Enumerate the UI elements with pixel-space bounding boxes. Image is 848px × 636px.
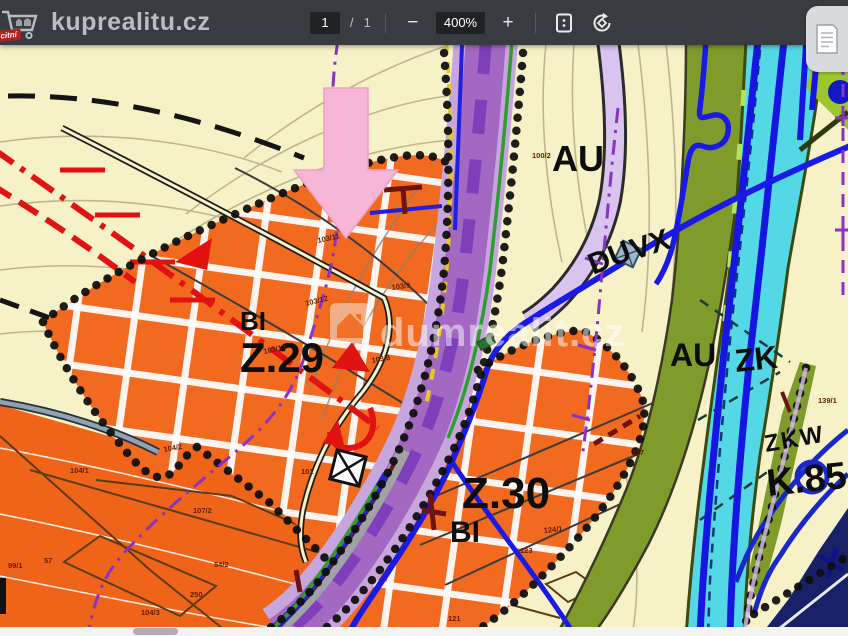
horizontal-scrollbar[interactable] [0, 627, 848, 636]
parcel-label: 57 [44, 556, 52, 565]
logo-text: kuprealitu.cz [51, 8, 210, 37]
zone-label-au-top: AU [552, 138, 604, 179]
parcel-label: 101 [301, 467, 314, 476]
parcel-label: 139/1 [818, 396, 837, 405]
pdf-controls: 1 / 1 − 400% + [310, 0, 616, 45]
fit-to-page-button[interactable] [550, 9, 578, 37]
viewer-toolbar: licitní kuprealitu.cz 1 / 1 − 400% + [0, 0, 848, 45]
open-document-button[interactable] [806, 6, 848, 72]
site-logo[interactable]: licitní kuprealitu.cz [4, 4, 264, 42]
shopping-cart-icon: licitní [0, 4, 42, 42]
zoom-in-button[interactable]: + [495, 10, 521, 36]
zone-label-z29: Z.29 [240, 334, 324, 381]
zone-label-au-mid: AU [670, 337, 716, 373]
page-separator: / [350, 15, 354, 30]
parcel-label: 100/2 [532, 151, 551, 160]
map-edge-mark [0, 578, 6, 614]
parcel-label: 121 [448, 614, 461, 623]
rotate-page-button[interactable] [588, 9, 616, 37]
pdf-viewer: AU DU VX AU ZK BI Z.29 Z.30 BI ZKW K.85 … [0, 0, 848, 636]
zone-label-k85: K.85 [765, 455, 848, 505]
parcel-label: 107/2 [193, 506, 212, 515]
parcel-label: 250 [190, 590, 203, 599]
toolbar-divider [535, 13, 536, 33]
parcel-label: 123 [520, 546, 533, 555]
zoning-map-page[interactable]: AU DU VX AU ZK BI Z.29 Z.30 BI ZKW K.85 … [0, 0, 848, 636]
monument-symbol [330, 450, 366, 486]
zoom-out-button[interactable]: − [400, 10, 426, 36]
zone-label-z30: Z.30 [462, 469, 550, 518]
parcel-label: 104/1 [70, 466, 89, 475]
rotate-page-icon [591, 12, 613, 34]
zone-label-bi-z29: BI [240, 306, 266, 336]
parcel-label: 54/2 [214, 560, 229, 569]
page-total: 1 [364, 15, 371, 30]
parcel-label: 99/1 [8, 561, 23, 570]
horizontal-scrollbar-thumb[interactable] [133, 628, 178, 635]
fit-to-page-icon [553, 12, 575, 34]
watermark-text: dumrealit.cz [380, 311, 625, 355]
parcel-label: 104/3 [141, 608, 160, 617]
parcel-label: 117 [632, 448, 644, 457]
toolbar-divider [385, 13, 386, 33]
page-number-input[interactable]: 1 [310, 12, 340, 34]
zoom-level: 400% [436, 12, 485, 34]
open-document-icon [814, 23, 840, 55]
zone-label-bi-z30: BI [450, 516, 480, 549]
zone-label-zk: ZK [733, 339, 779, 379]
